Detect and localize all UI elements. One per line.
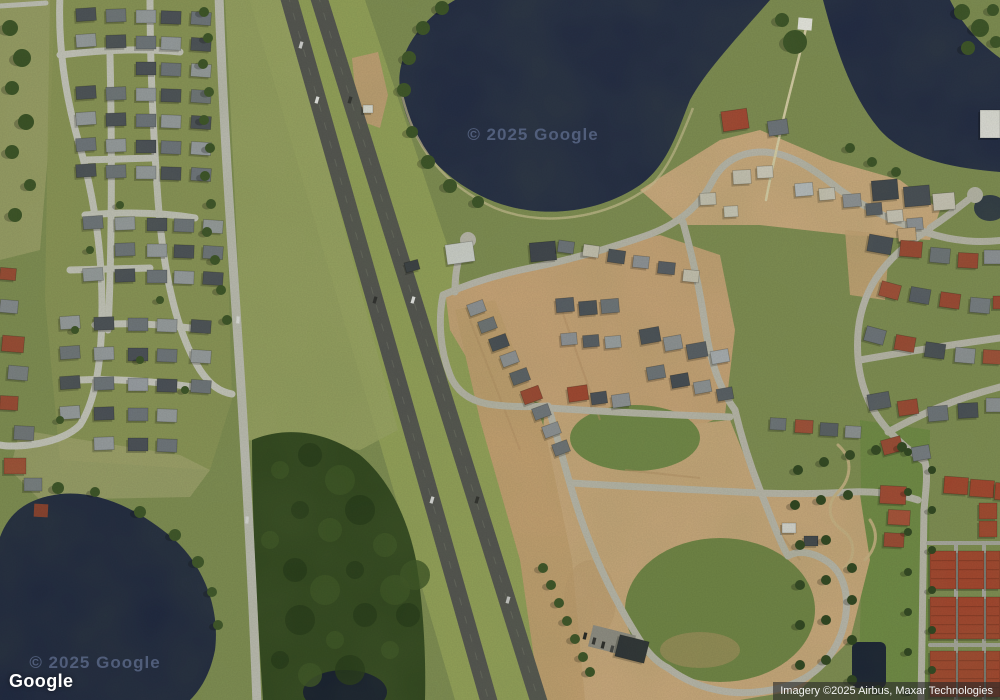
watermark-lake: © 2025 Google (29, 653, 160, 672)
image-grain (0, 0, 1000, 700)
satellite-canvas: © 2025 Google © 2025 Google (0, 0, 1000, 700)
attribution-text: Imagery ©2025 Airbus, Maxar Technologies (773, 682, 1000, 700)
watermark-center: © 2025 Google (467, 125, 598, 144)
google-logo[interactable]: Google (9, 671, 73, 692)
satellite-map[interactable]: © 2025 Google © 2025 Google Google Image… (0, 0, 1000, 700)
